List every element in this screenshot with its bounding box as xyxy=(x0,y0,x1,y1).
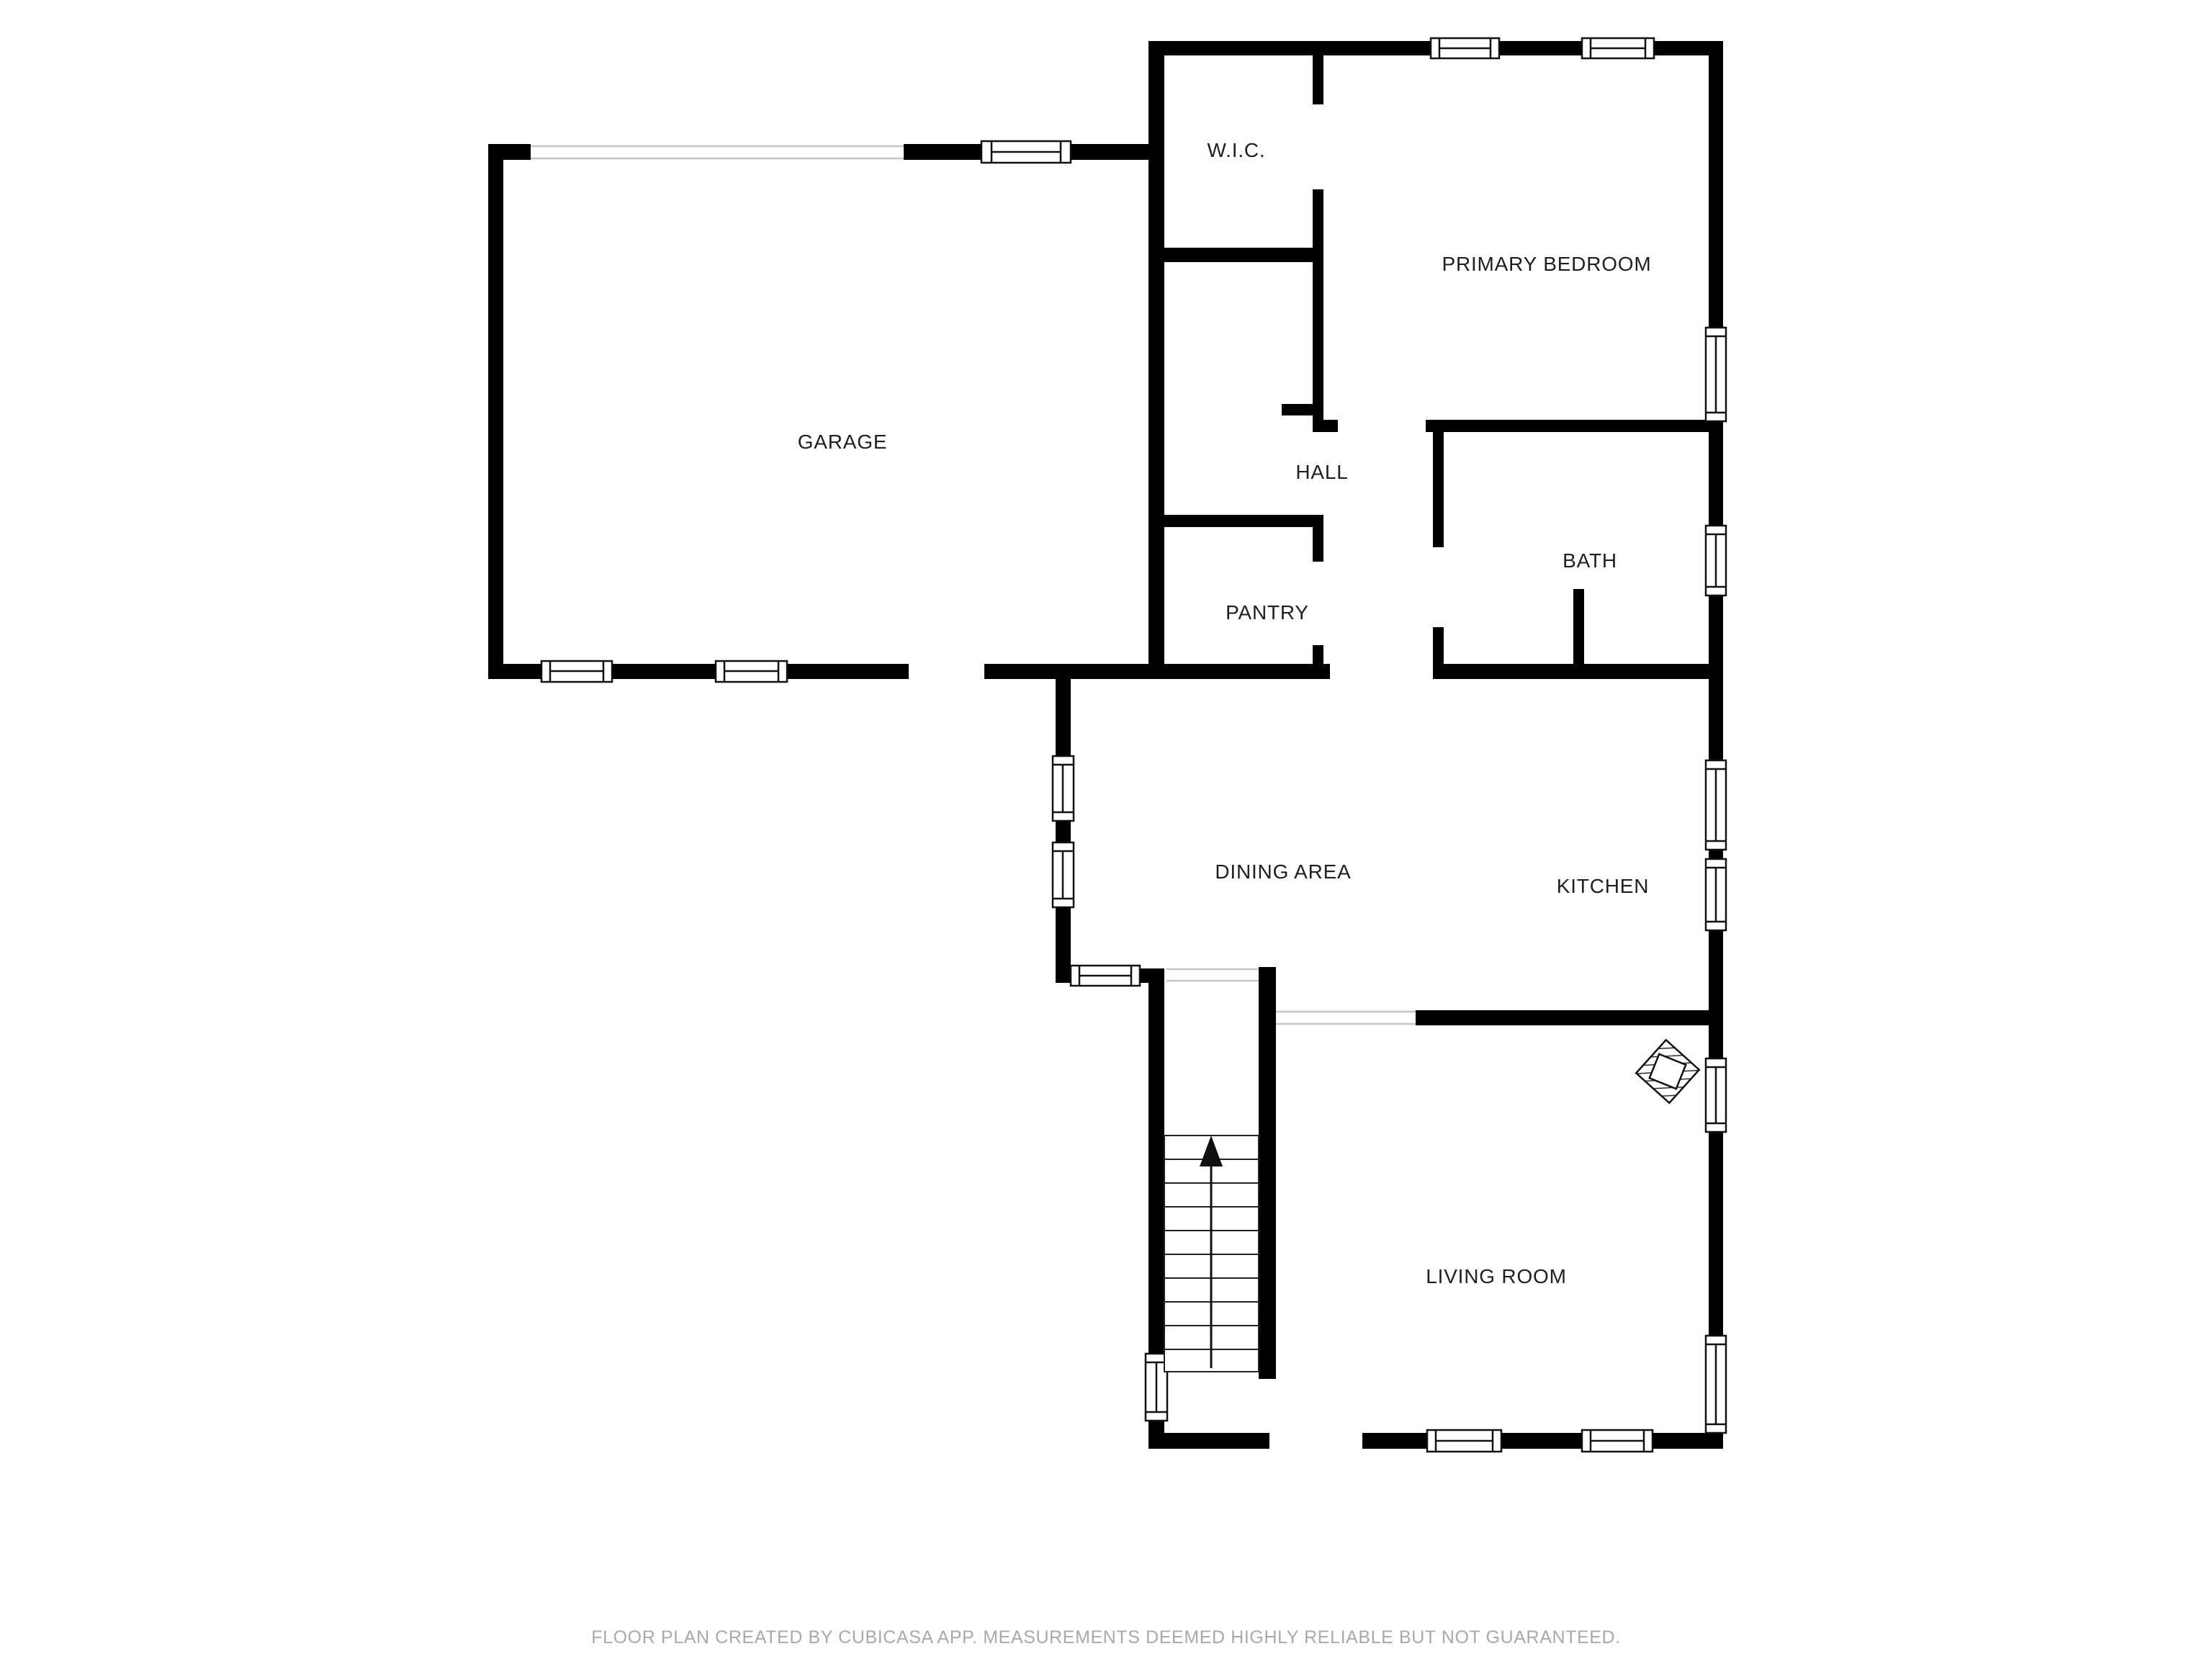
room-label-bath: BATH xyxy=(1563,549,1617,572)
window xyxy=(1706,526,1726,595)
window xyxy=(1706,859,1726,930)
window xyxy=(1053,842,1074,907)
room-label-kitchen: KITCHEN xyxy=(1557,875,1650,897)
windows xyxy=(541,38,1726,1452)
window xyxy=(1053,756,1074,821)
window xyxy=(981,141,1071,163)
footer-disclaimer: FLOOR PLAN CREATED BY CUBICASA APP. MEAS… xyxy=(591,1627,1621,1647)
staircase xyxy=(1164,1136,1259,1372)
room-label-primary-bedroom: PRIMARY BEDROOM xyxy=(1442,253,1651,275)
room-label-wic: W.I.C. xyxy=(1207,139,1265,161)
room-label-hall: HALL xyxy=(1295,461,1348,483)
window xyxy=(1431,38,1499,58)
floor-plan: GARAGE W.I.C. PRIMARY BEDROOM HALL PANTR… xyxy=(0,0,2212,1659)
window xyxy=(1706,760,1726,850)
garage-door-opening xyxy=(531,145,904,159)
room-label-garage: GARAGE xyxy=(798,431,888,453)
window xyxy=(1706,1058,1726,1132)
window xyxy=(1706,1336,1726,1433)
window xyxy=(1071,966,1140,986)
room-label-dining: DINING AREA xyxy=(1215,860,1351,883)
stair-cased-opening xyxy=(1166,968,1259,982)
room-label-living: LIVING ROOM xyxy=(1426,1265,1567,1287)
window xyxy=(1427,1430,1501,1452)
kitchen-living-opening xyxy=(1276,1012,1416,1024)
room-labels: GARAGE W.I.C. PRIMARY BEDROOM HALL PANTR… xyxy=(798,139,1652,1287)
window xyxy=(716,661,787,682)
window xyxy=(1706,328,1726,421)
window xyxy=(1582,1430,1653,1452)
window xyxy=(541,661,612,682)
window xyxy=(1582,38,1654,58)
fireplace-icon xyxy=(1636,1040,1699,1103)
floor-plan-page: GARAGE W.I.C. PRIMARY BEDROOM HALL PANTR… xyxy=(0,0,2212,1659)
room-label-pantry: PANTRY xyxy=(1226,601,1309,624)
